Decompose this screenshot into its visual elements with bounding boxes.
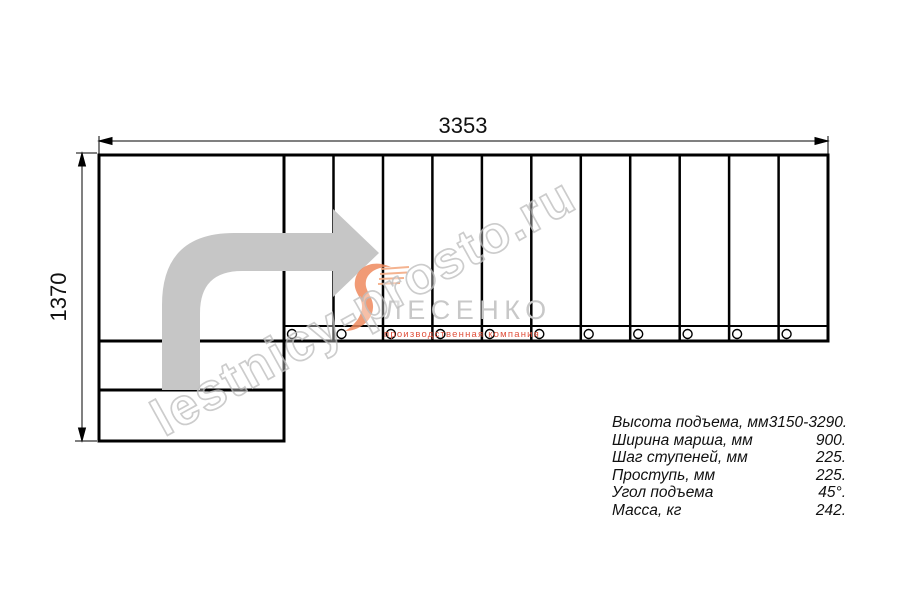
spec-value: 3150-3290. xyxy=(769,414,847,432)
spec-label: Проступь, мм xyxy=(612,467,715,485)
spec-value: 45°. xyxy=(818,484,846,502)
spec-label: Масса, кг xyxy=(612,502,681,520)
spec-row-mass: Масса, кг 242. xyxy=(612,502,846,520)
spec-value: 242. xyxy=(816,502,846,520)
spec-table: Высота подъема, мм 3150-3290. Ширина мар… xyxy=(612,414,846,520)
spec-row-angle: Угол подъема 45°. xyxy=(612,484,846,502)
stair-drawing-page: 3353 1370 xyxy=(0,0,900,600)
dim-arrow-right-icon xyxy=(815,138,828,145)
spec-label: Высота подъема, мм xyxy=(612,414,769,432)
spec-label: Ширина марша, мм xyxy=(612,432,753,450)
spec-label: Шаг ступеней, мм xyxy=(612,449,748,467)
spec-row-tread: Проступь, мм 225. xyxy=(612,467,846,485)
left-dimension-label: 1370 xyxy=(46,273,71,322)
spec-label: Угол подъема xyxy=(612,484,713,502)
spec-value: 225. xyxy=(816,467,846,485)
spec-value: 225. xyxy=(816,449,846,467)
dim-arrow-left-icon xyxy=(99,138,112,145)
spec-row-width: Ширина марша, мм 900. xyxy=(612,432,846,450)
dim-arrow-down-icon xyxy=(79,428,86,441)
dimension-left: 1370 xyxy=(46,153,97,441)
spec-row-height: Высота подъема, мм 3150-3290. xyxy=(612,414,846,432)
logo-tagline: производственная компания xyxy=(384,329,540,340)
spec-row-step: Шаг ступеней, мм 225. xyxy=(612,449,846,467)
dim-arrow-up-icon xyxy=(79,153,86,166)
top-dimension-label: 3353 xyxy=(439,113,488,138)
spec-value: 900. xyxy=(816,432,846,450)
dimension-top: 3353 xyxy=(99,113,828,154)
